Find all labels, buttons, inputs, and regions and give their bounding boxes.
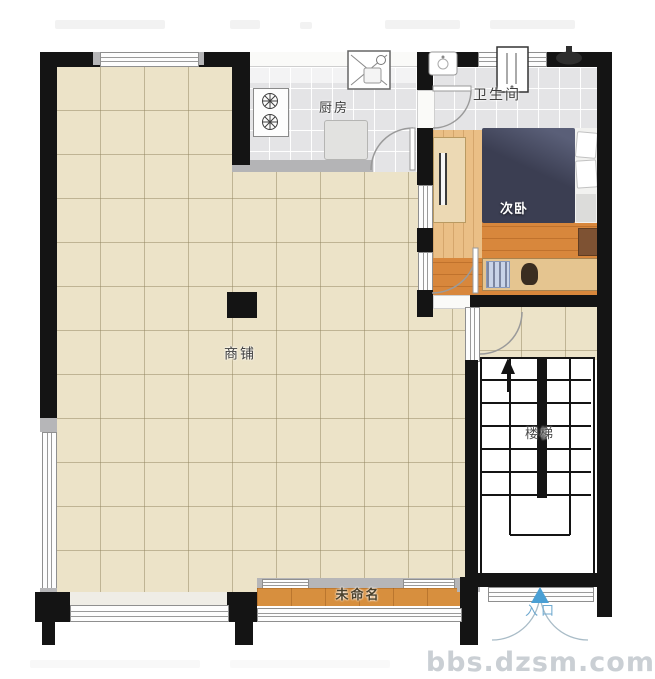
stairhall-door-arc — [480, 312, 522, 354]
label-unnamed: 未命名 — [335, 589, 380, 603]
shower-head-icon — [556, 46, 582, 65]
label-stairs: 楼梯 — [525, 428, 555, 442]
stove-burners-icon — [262, 93, 278, 130]
kitchen-sink-icon — [348, 51, 390, 89]
label-bathroom: 卫生间 — [473, 88, 521, 103]
water-heater-icon — [497, 47, 528, 92]
label-entrance: 入口 — [525, 605, 557, 619]
watermark: bbs.dzsm.com — [426, 647, 655, 678]
bedroom-door-arc — [432, 248, 477, 293]
bathroom-sink-icon — [429, 52, 457, 75]
label-bedroom: 次卧 — [500, 203, 528, 217]
bedroom-door-leaf — [473, 248, 478, 293]
bathroom-door-leaf — [433, 86, 471, 91]
entrance-arrow-icon — [531, 587, 549, 603]
stairs-steps — [482, 359, 591, 535]
label-shop: 商铺 — [224, 347, 256, 362]
floorplan-canvas: 厨房 卫生间 次卧 商铺 楼梯 未命名 入口 bbs.dzsm.com — [0, 0, 655, 679]
bathroom-door-arc — [433, 90, 471, 128]
kitchen-door-arc — [371, 128, 413, 170]
stairs-up-arrow-icon — [501, 358, 515, 392]
kitchen-door-leaf — [410, 128, 415, 170]
label-kitchen: 厨房 — [319, 102, 349, 116]
